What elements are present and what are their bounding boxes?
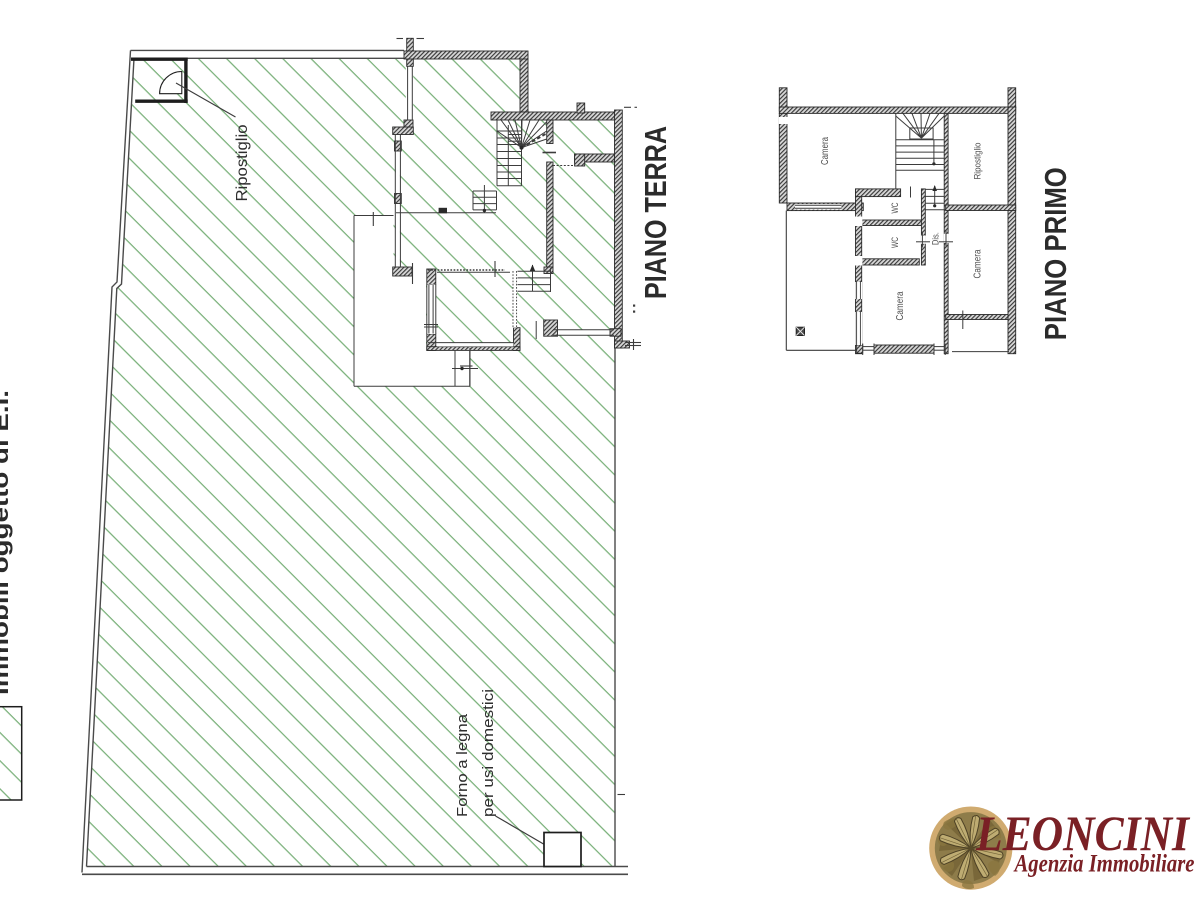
svg-text:WC: WC (890, 237, 900, 248)
svg-text:Dis.: Dis. (931, 232, 941, 245)
svg-text:Agenzia Immobiliare: Agenzia Immobiliare (1013, 851, 1195, 878)
svg-text:Camera: Camera (973, 249, 984, 278)
svg-text:per usi domestici: per usi domestici (481, 689, 497, 817)
svg-text:Ripostiglio: Ripostiglio (973, 143, 983, 180)
svg-text:PIANO TERRA: PIANO TERRA (638, 126, 673, 299)
svg-text:Forno a legna: Forno a legna (455, 713, 471, 817)
svg-text:WC: WC (890, 202, 900, 213)
svg-text:Immobili oggetto di E.I.: Immobili oggetto di E.I. (0, 390, 13, 695)
svg-text:Camera: Camera (895, 291, 906, 320)
svg-text:PIANO PRIMO: PIANO PRIMO (1038, 167, 1073, 340)
svg-text:Camera: Camera (820, 137, 831, 165)
svg-text:Ripostiglio: Ripostiglio (234, 125, 251, 202)
